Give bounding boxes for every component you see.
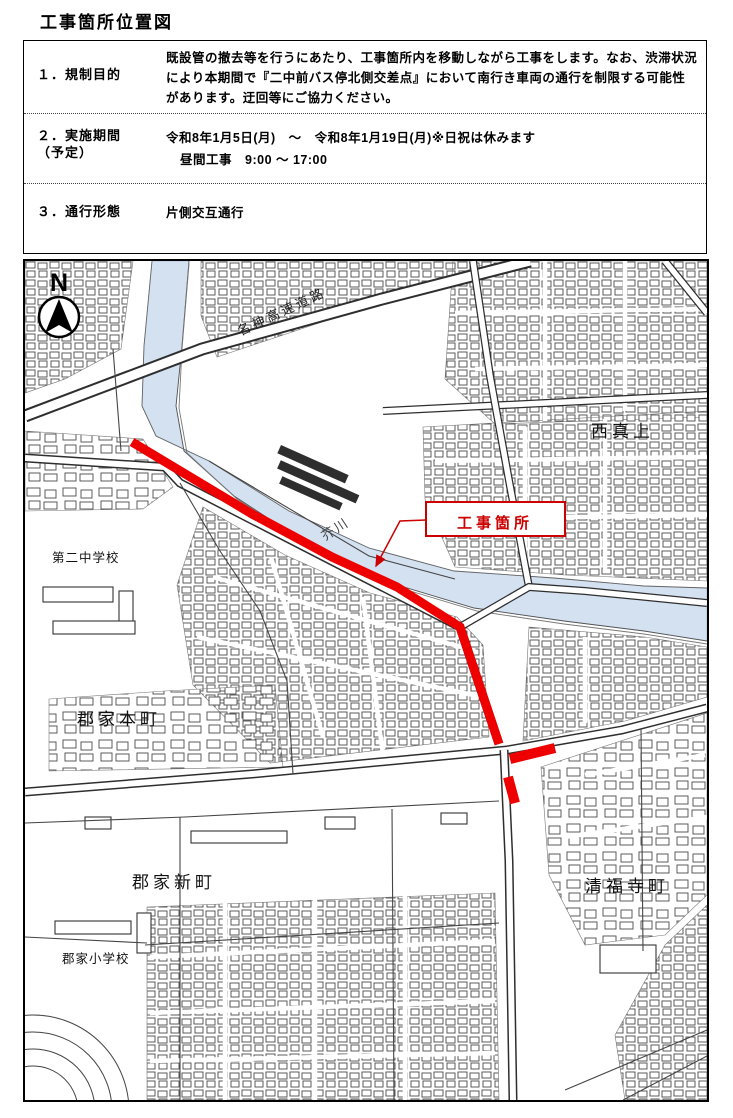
district-seifukuji: 清福寺町	[585, 877, 669, 896]
track-field-arcs	[25, 1015, 129, 1100]
purpose-line-1: 既設管の撤去等を行うにあたり、工事箇所内を移動しながら工事をします。	[166, 51, 606, 65]
table-row-traffic: ３．通行形態 片側交互通行	[24, 183, 706, 253]
period-label: ２．実施期間	[37, 127, 166, 144]
traffic-type: 片側交互通行	[166, 184, 706, 253]
regulation-table: １．規制目的 既設管の撤去等を行うにあたり、工事箇所内を移動しながら工事をします…	[23, 40, 707, 254]
map-canvas: 工事箇所 N 名神高速道路 芥川 西真上 郡家本町 郡家新町 清福寺町 第二中学…	[25, 261, 707, 1100]
table-row-period: ２．実施期間 （予定） 令和8年1月5日(月) ～ 令和8年1月19日(月)※日…	[24, 113, 706, 183]
school-daini-junior-high: 第二中学校	[52, 550, 120, 565]
school-gunge-elementary: 郡家小学校	[62, 951, 130, 966]
row-label: ３．通行形態	[24, 184, 166, 253]
row-label: １．規制目的	[24, 41, 166, 113]
row-label: ２．実施期間 （予定）	[24, 114, 166, 183]
district-gunge-shinmachi: 郡家新町	[132, 873, 216, 892]
location-map: 工事箇所 N 名神高速道路 芥川 西真上 郡家本町 郡家新町 清福寺町 第二中学…	[23, 259, 709, 1102]
riverside-buildings	[266, 445, 365, 515]
period-label-2: （予定）	[37, 144, 166, 161]
route-bar-south	[508, 777, 515, 803]
page-title: 工事箇所位置図	[40, 8, 173, 33]
period-dates: 令和8年1月5日(月) ～ 令和8年1月19日(月)※日祝は休みます	[166, 127, 698, 149]
building-blocks	[25, 261, 707, 1100]
row-content: 既設管の撤去等を行うにあたり、工事箇所内を移動しながら工事をします。なお、渋滞状…	[166, 41, 706, 113]
district-gunge-honmachi: 郡家本町	[77, 710, 161, 729]
period-hours: 昼間工事 9:00 ～ 17:00	[180, 149, 698, 171]
north-label: N	[50, 269, 68, 297]
callout-label: 工事箇所	[457, 514, 533, 532]
row-content: 令和8年1月5日(月) ～ 令和8年1月19日(月)※日祝は休みます 昼間工事 …	[166, 114, 706, 183]
table-row-purpose: １．規制目的 既設管の撤去等を行うにあたり、工事箇所内を移動しながら工事をします…	[24, 41, 706, 113]
district-nishimakami: 西真上	[591, 422, 654, 441]
